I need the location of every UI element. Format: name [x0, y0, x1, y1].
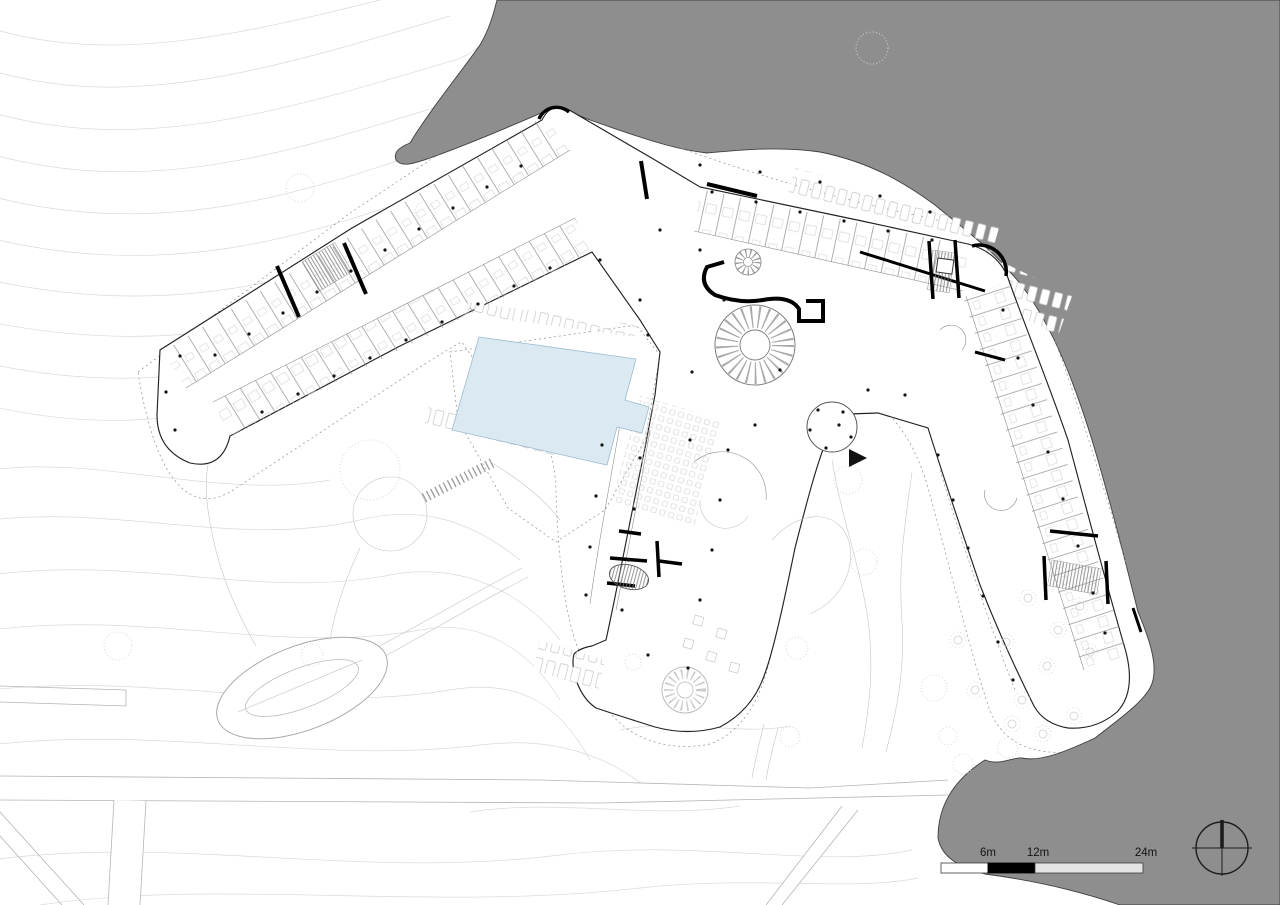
- elevator: [936, 258, 954, 274]
- courtyard-planter: [807, 402, 857, 452]
- floor-plan-drawing: 6m 12m 24m: [0, 0, 1280, 905]
- scale-label-12m: 12m: [1027, 847, 1049, 859]
- spiral-stair-small: [735, 249, 761, 275]
- spiral-stair-main: [715, 305, 795, 385]
- scale-label-24m: 24m: [1135, 847, 1157, 859]
- scale-label-6m: 6m: [980, 847, 996, 859]
- site-plan-sheet: 6m 12m 24m: [0, 0, 1280, 905]
